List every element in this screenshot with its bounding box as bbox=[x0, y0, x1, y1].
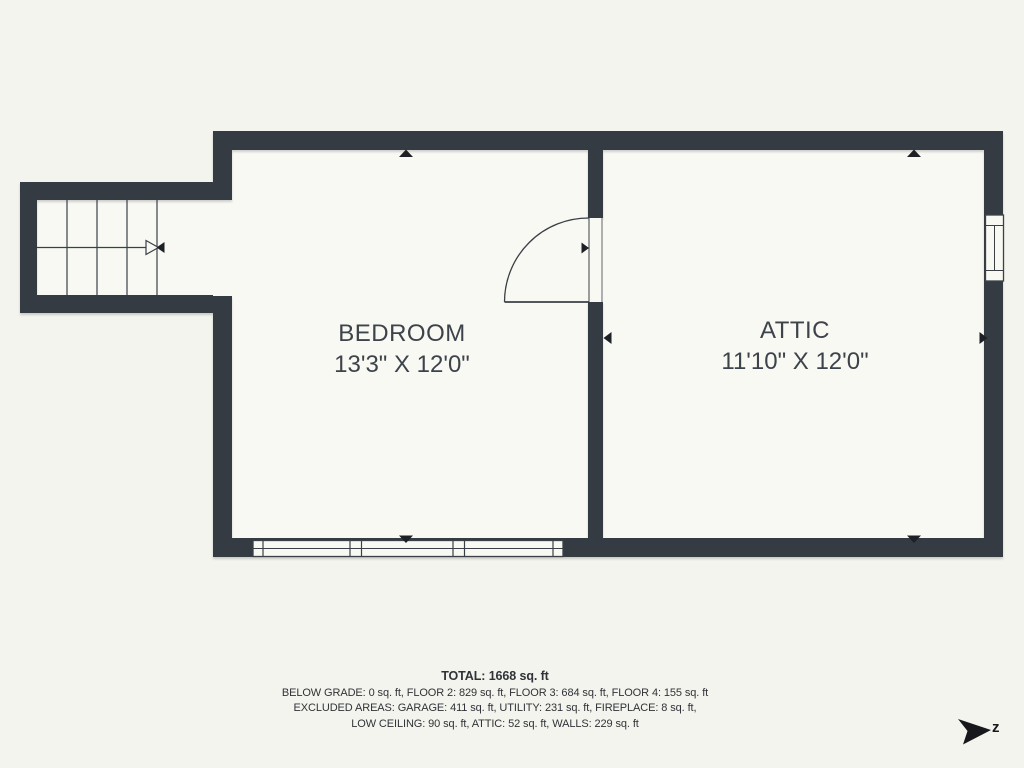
attic-dimensions: 11'10" X 12'0" bbox=[645, 349, 945, 375]
wall-left-lower bbox=[213, 296, 232, 557]
logo-letter: z bbox=[992, 720, 1000, 735]
window-bedroom-south-icon bbox=[253, 541, 563, 557]
wall-stair-left bbox=[20, 182, 37, 313]
bedroom-label: BEDROOM bbox=[252, 321, 552, 347]
stair-passage-floor bbox=[213, 198, 232, 298]
area-summary: TOTAL: 1668 sq. ft BELOW GRADE: 0 sq. ft… bbox=[0, 669, 990, 732]
excluded-areas-text-2: LOW CEILING: 90 sq. ft, ATTIC: 52 sq. ft… bbox=[0, 717, 990, 733]
wall-divider-lower bbox=[588, 302, 603, 538]
attic-floor bbox=[603, 150, 984, 538]
attic-label: ATTIC bbox=[645, 318, 945, 344]
wall-stair-bottom bbox=[20, 295, 213, 313]
bedroom-dimensions: 13'3" X 12'0" bbox=[252, 352, 552, 378]
wall-stair-top bbox=[20, 182, 213, 200]
wall-left-upper bbox=[213, 131, 232, 200]
total-area-text: TOTAL: 1668 sq. ft bbox=[0, 669, 990, 685]
wall-top bbox=[213, 131, 1003, 150]
window-attic-east-icon bbox=[986, 215, 1004, 281]
floorplan-page: BEDROOM 13'3" X 12'0" ATTIC 11'10" X 12'… bbox=[0, 0, 1024, 768]
wall-divider-upper bbox=[588, 150, 603, 218]
door-opening bbox=[588, 218, 603, 302]
floorplan-drawing bbox=[0, 0, 1024, 768]
excluded-areas-text-1: EXCLUDED AREAS: GARAGE: 411 sq. ft, UTIL… bbox=[0, 701, 990, 717]
floor-areas-text: BELOW GRADE: 0 sq. ft, FLOOR 2: 829 sq. … bbox=[0, 686, 990, 702]
wall-right bbox=[984, 131, 1003, 557]
